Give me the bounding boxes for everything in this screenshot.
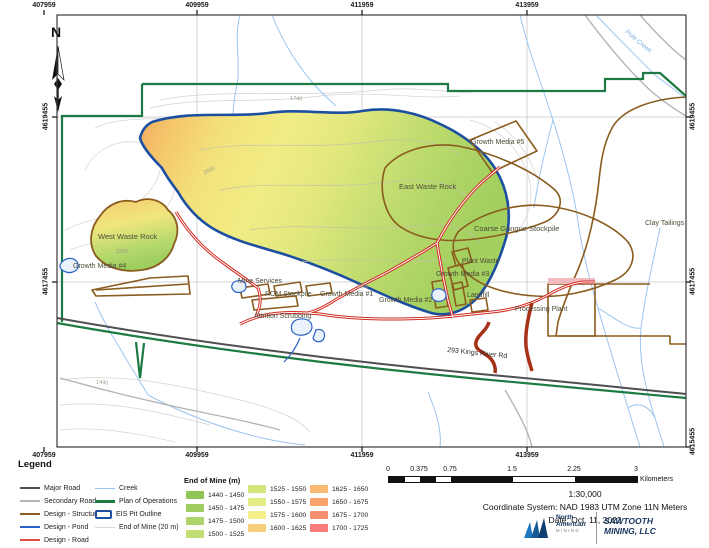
label-rom-stockpile: ROM Stockpile	[265, 291, 312, 298]
legend-label: Plan of Operations	[119, 498, 177, 505]
design-structure-swatch	[20, 513, 40, 515]
ramp-swatch	[186, 491, 204, 499]
scale-tick: 0.375	[410, 466, 428, 473]
scale-tick: 2.25	[567, 466, 581, 473]
legend-item-design-structure: Design - Structure	[20, 509, 100, 519]
map-scale-text: 1:30,000	[425, 489, 709, 499]
ramp-label: 1525 - 1550	[270, 486, 306, 493]
sawtooth-line1: SAWTOOTH	[604, 516, 656, 526]
ramp-swatch	[186, 530, 204, 538]
legend-item-creek: Creek	[95, 483, 138, 493]
sawtooth-mining-wordmark: SAWTOOTH MINING, LLC	[604, 516, 656, 536]
ramp-swatch	[186, 504, 204, 512]
ramp-label: 1575 - 1600	[270, 512, 306, 519]
branding: North American MINING SAWTOOTH MINING, L…	[520, 512, 705, 546]
ramp-item: 1650 - 1675	[310, 497, 368, 507]
northing-label-right-1: 4617455	[690, 252, 697, 312]
contour-label-0: 1740	[290, 96, 303, 103]
legend-label: Design - Road	[44, 537, 89, 544]
brand-divider	[596, 512, 597, 544]
ramp-label: 1650 - 1675	[332, 499, 368, 506]
ramp-item: 1440 - 1450	[186, 490, 244, 500]
scale-tick: 1.5	[507, 466, 517, 473]
label-processing-plant: Processing Plant	[515, 306, 568, 313]
ramp-item: 1600 - 1625	[248, 523, 306, 533]
nam-line1: North	[556, 514, 586, 521]
scale-tick: 0.75	[443, 466, 457, 473]
end-of-mine-20m-swatch	[95, 527, 115, 528]
ramp-label: 1550 - 1575	[270, 499, 306, 506]
scale-tick: 0	[386, 466, 390, 473]
label-landfill: Landfill	[467, 292, 489, 299]
ramp-label: 1675 - 1700	[332, 512, 368, 519]
label-growth-media-4: Growth Media #4	[73, 263, 126, 270]
label-west-waste-rock: West Waste Rock	[98, 232, 157, 241]
ramp-label: 1625 - 1650	[332, 486, 368, 493]
label-growth-media-2: Growth Media #2	[379, 297, 432, 304]
legend-title: Legend	[18, 459, 52, 470]
northing-label-right-2: 4615455	[690, 412, 697, 472]
legend-item-design-road: Design - Road	[20, 535, 89, 545]
contour-label-2: 1500	[116, 249, 128, 255]
easting-label-bottom-1: 409959	[173, 452, 221, 459]
scale-bar-segments	[388, 476, 638, 483]
scale-tick: 3	[634, 466, 638, 473]
legend-label: Creek	[119, 485, 138, 492]
eis-pit-outline-swatch	[95, 510, 112, 519]
ramp-swatch	[248, 511, 266, 519]
ramp-label: 1475 - 1500	[208, 518, 244, 525]
ramp-item: 1550 - 1575	[248, 497, 306, 507]
ramp-item: 1450 - 1475	[186, 503, 244, 513]
label-growth-media-3: Growth Media #3	[436, 271, 489, 278]
map-document: 407959 409959 411959 413959 407959 40995…	[0, 0, 709, 548]
ramp-label: 1450 - 1475	[208, 505, 244, 512]
label-coarse-gangue-stockpile: Coarse Gangue Stockpile	[474, 224, 559, 233]
contour-label-4: 1440	[96, 379, 109, 386]
legend-label: Major Road	[44, 485, 80, 492]
label-growth-media-5: Growth Media #5	[471, 139, 524, 146]
ramp-item: 1700 - 1725	[310, 523, 368, 533]
design-road-swatch	[20, 539, 40, 541]
north-american-mining-logo-icon	[520, 516, 554, 542]
easting-label-top-0: 407959	[20, 2, 68, 9]
easting-label-bottom-0: 407959	[20, 452, 68, 459]
ramp-item: 1575 - 1600	[248, 510, 306, 520]
easting-label-bottom-2: 411959	[338, 452, 386, 459]
ramp-swatch	[248, 524, 266, 532]
legend-label: Design - Pond	[44, 524, 88, 531]
label-attrition-scrubbing: Attrition Scrubbing	[254, 313, 311, 320]
ramp-swatch	[310, 498, 328, 506]
nam-sub: MINING	[556, 528, 586, 533]
ramp-label: 1700 - 1725	[332, 525, 368, 532]
ramp-item: 1625 - 1650	[310, 484, 368, 494]
contour-label-3: 1560	[356, 284, 368, 290]
ramp-item: 1500 - 1525	[186, 529, 244, 539]
north-letter: N	[51, 24, 61, 40]
easting-label-bottom-3: 413959	[503, 452, 551, 459]
coordinate-system-text: Coordinate System: NAD 1983 UTM Zone 11N…	[425, 502, 709, 512]
northing-label-left-0: 4619455	[43, 87, 50, 147]
secondary-road-swatch	[20, 500, 40, 502]
easting-label-top-3: 413959	[503, 2, 551, 9]
legend-label: Secondary Road	[44, 498, 96, 505]
scale-unit: Kilometers	[640, 476, 673, 483]
northing-label-right-0: 4619455	[690, 87, 697, 147]
major-road-swatch	[20, 487, 40, 489]
legend-item-plan-of-operations: Plan of Operations	[95, 496, 177, 506]
legend-item-end-of-mine-20m: End of Mine (20 m)	[95, 522, 179, 532]
ramp-item: 1475 - 1500	[186, 516, 244, 526]
ramp-swatch	[310, 511, 328, 519]
label-growth-media-1: Growth Media #1	[320, 291, 373, 298]
north-arrow-icon	[52, 46, 64, 112]
easting-label-top-1: 409959	[173, 2, 221, 9]
label-mine-services: Mine Services	[238, 278, 282, 285]
ramp-title: End of Mine (m)	[184, 476, 240, 485]
easting-label-top-2: 411959	[338, 2, 386, 9]
sawtooth-line2: MINING, LLC	[604, 526, 656, 536]
nam-line2: American	[556, 521, 586, 528]
ramp-item: 1525 - 1550	[248, 484, 306, 494]
ramp-swatch	[248, 498, 266, 506]
legend-label: End of Mine (20 m)	[119, 524, 179, 531]
legend-item-secondary-road: Secondary Road	[20, 496, 96, 506]
ramp-swatch	[186, 517, 204, 525]
legend-label: EIS Pit Outline	[116, 511, 162, 518]
ramp-item: 1675 - 1700	[310, 510, 368, 520]
ramp-swatch	[310, 524, 328, 532]
northing-label-left-1: 4617455	[43, 252, 50, 312]
creek-swatch	[95, 488, 115, 489]
north-american-mining-wordmark: North American MINING	[556, 514, 586, 533]
label-east-waste-rock: East Waste Rock	[399, 182, 456, 191]
legend-item-eis-pit-outline: EIS Pit Outline	[95, 509, 162, 519]
ramp-swatch	[310, 485, 328, 493]
label-plant-waste: Plant Waste	[462, 258, 499, 265]
ramp-label: 1600 - 1625	[270, 525, 306, 532]
ramp-label: 1440 - 1450	[208, 492, 244, 499]
legend-item-major-road: Major Road	[20, 483, 80, 493]
legend-label: Design - Structure	[44, 511, 100, 518]
scale-bar: 0 0.375 0.75 1.5 2.25 3 Kilometers	[388, 466, 688, 488]
ramp-swatch	[248, 485, 266, 493]
design-pond-swatch	[20, 526, 40, 528]
major-road	[57, 318, 686, 394]
ramp-label: 1500 - 1525	[208, 531, 244, 538]
plan-of-operations-swatch	[95, 500, 115, 503]
legend-item-design-pond: Design - Pond	[20, 522, 88, 532]
label-clay-tailings: Clay Tailings	[645, 220, 684, 227]
